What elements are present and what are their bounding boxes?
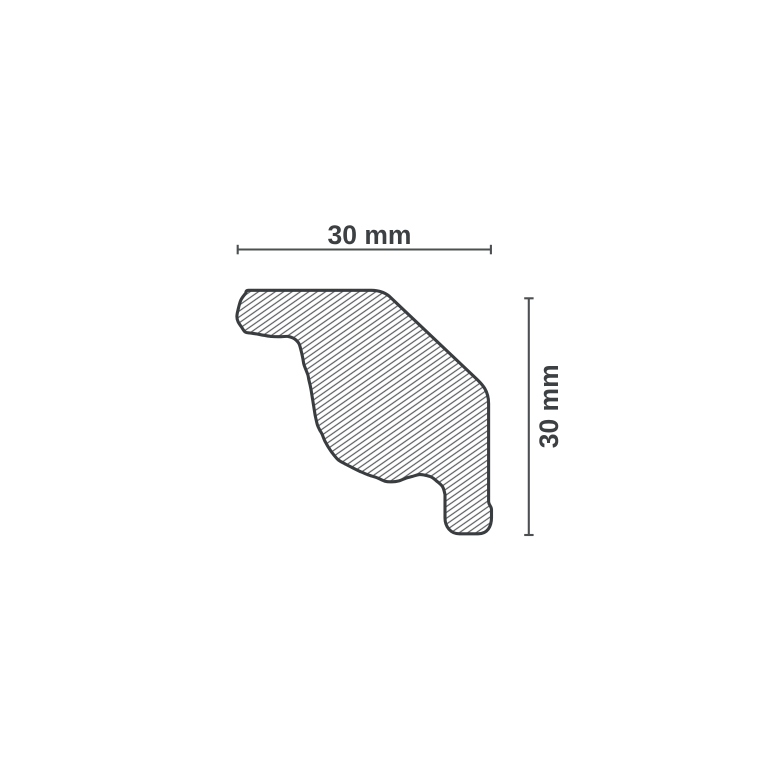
svg-text:30 mm: 30 mm bbox=[328, 220, 412, 250]
svg-text:30 mm: 30 mm bbox=[534, 364, 564, 448]
